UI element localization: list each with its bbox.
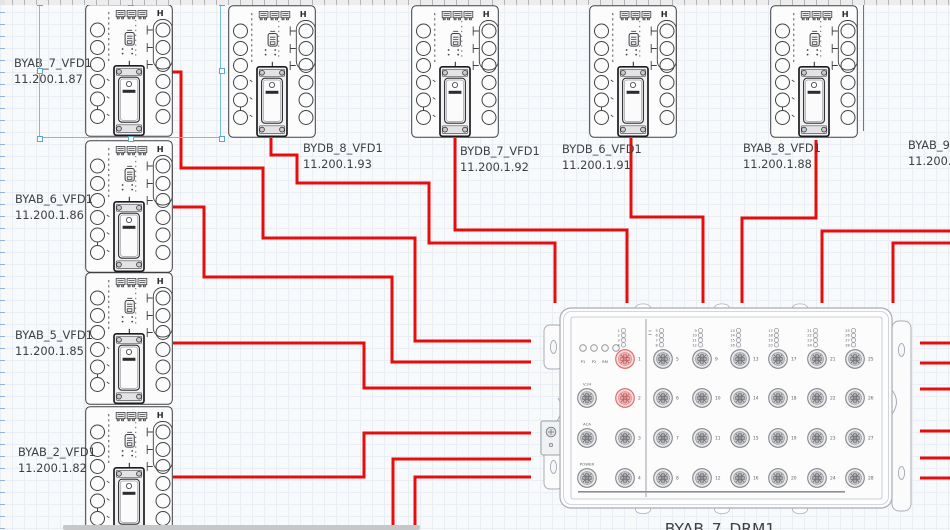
drm-port[interactable]	[808, 429, 827, 448]
drm-port[interactable]	[654, 389, 673, 408]
device-ip: 11.200.1.82	[18, 460, 96, 476]
port-indicator-led	[736, 338, 740, 342]
device-label: BYAB_2_VFD111.200.1.82	[18, 444, 96, 477]
port-number: 16	[753, 476, 759, 482]
device-ip: 11.200.1.86	[15, 207, 93, 223]
drm-port-highlighted[interactable]	[616, 350, 635, 369]
vfd-device-byab_6_vfd1[interactable]: H	[85, 140, 173, 273]
port-indicator-led	[813, 333, 817, 337]
port-led-number: 11	[692, 339, 697, 343]
port-led-number: 23	[807, 339, 812, 343]
vfd-device-byab_5_vfd1[interactable]: H	[85, 272, 173, 405]
status-led-p1	[580, 345, 587, 352]
port-number: 26	[868, 396, 874, 402]
port-number: 2	[638, 396, 641, 402]
port-led-number: 18	[768, 334, 773, 338]
device-ip: 11.200.1.92	[460, 159, 540, 175]
drm-port[interactable]	[769, 389, 788, 408]
port-led-number: 28	[845, 343, 850, 347]
port-indicator-led	[813, 343, 817, 347]
drm-port[interactable]	[693, 469, 712, 488]
port-led-number: 20	[768, 343, 773, 347]
device-name: BYAB_2_VFD1	[18, 444, 96, 460]
port-led-number: 25	[845, 329, 850, 333]
port-led-number: 5	[656, 329, 658, 333]
selection-handle[interactable]	[37, 136, 43, 142]
drm-port[interactable]	[693, 389, 712, 408]
port-indicator-led	[659, 328, 663, 332]
device-label-byab9: BYAB_9_ 11.200.1	[908, 137, 950, 170]
port-indicator-led	[774, 328, 778, 332]
drm-port[interactable]	[731, 429, 750, 448]
drm-port[interactable]	[846, 389, 865, 408]
status-led-rm	[602, 345, 609, 352]
drm-port[interactable]	[808, 389, 827, 408]
drm-port[interactable]	[808, 350, 827, 369]
port-number: 12	[715, 476, 721, 482]
status-led-p2	[591, 345, 598, 352]
h-port-icon: H	[157, 276, 164, 286]
vfd-device-graphic: H	[411, 5, 499, 138]
port-led-number: 15	[730, 339, 735, 343]
port-number: 22	[830, 396, 836, 402]
port-number: 15	[753, 436, 759, 442]
device-label: BYAB_6_VFD111.200.1.86	[15, 191, 93, 224]
ruler-corner	[0, 0, 5, 5]
selection-box[interactable]	[39, 2, 221, 138]
device-ip: 11.200.1.88	[743, 156, 821, 172]
horizontal-scrollbar-thumb[interactable]	[63, 525, 420, 530]
port-indicator-led	[813, 328, 817, 332]
port-number: 24	[830, 476, 836, 482]
drm-port[interactable]	[808, 469, 827, 488]
device-ip: 11.200.1.93	[303, 156, 383, 172]
h-port-icon: H	[483, 9, 490, 19]
horizontal-ruler	[0, 0, 950, 5]
device-label: BYDB_6_VFD111.200.1.91	[562, 141, 642, 174]
drm-device-label: BYAB_7_DRM1	[645, 520, 795, 530]
port-number: 9	[715, 357, 718, 363]
device-name: BYDB_7_VFD1	[460, 143, 540, 159]
h-port-icon: H	[157, 144, 164, 154]
device-ip: 11.200.1.91	[562, 157, 642, 173]
port-led-number: 13	[730, 329, 735, 333]
drm-port[interactable]	[693, 429, 712, 448]
vfd-device-byab_8_vfd1[interactable]: H	[770, 5, 858, 138]
port-number: 28	[868, 476, 874, 482]
vfd-device-graphic: H	[589, 5, 677, 138]
drm-port-highlighted[interactable]	[616, 389, 635, 408]
status-led-label: P2	[592, 359, 597, 364]
vfd-device-graphic: H	[85, 406, 173, 530]
selection-handle[interactable]	[219, 68, 225, 74]
port-indicator-led	[736, 328, 740, 332]
drm-port[interactable]	[846, 350, 865, 369]
port-indicator-led	[698, 343, 702, 347]
drm-port[interactable]	[769, 350, 788, 369]
service-port-power[interactable]	[578, 469, 597, 488]
port-led-number: 24	[807, 343, 812, 347]
port-indicator-led	[851, 338, 855, 342]
port-led-number: 12	[692, 343, 697, 347]
port-number: 10	[715, 396, 721, 402]
drm-port[interactable]	[846, 469, 865, 488]
h-port-icon: H	[842, 9, 849, 19]
vfd-device-graphic: H	[85, 272, 173, 405]
device-name: BYAB_5_VFD1	[15, 327, 93, 343]
port-led-number: 16	[730, 343, 735, 347]
port-number: 6	[676, 396, 679, 402]
port-number: 25	[868, 357, 874, 363]
drm-port[interactable]	[616, 469, 635, 488]
port-number: 17	[791, 357, 797, 363]
port-indicator-led	[621, 343, 625, 347]
port-number: 1	[638, 357, 641, 363]
device-name: BYDB_8_VFD1	[303, 140, 383, 156]
port-number: 7	[676, 436, 679, 442]
port-indicator-led	[813, 338, 817, 342]
port-number: 11	[715, 436, 721, 442]
port-number: 27	[868, 436, 874, 442]
h-port-icon: H	[300, 9, 307, 19]
port-indicator-led	[851, 328, 855, 332]
device-label: BYAB_8_VFD111.200.1.88	[743, 140, 821, 173]
drm-port[interactable]	[731, 389, 750, 408]
port-number: 5	[676, 357, 679, 363]
vfd-device-graphic: H	[85, 140, 173, 273]
port-number: 8	[676, 476, 679, 482]
vfd-device-bydb_7_vfd1[interactable]: H	[411, 5, 499, 138]
port-indicator-led	[698, 333, 702, 337]
drm-port[interactable]	[769, 429, 788, 448]
device-label: BYAB_5_VFD111.200.1.85	[15, 327, 93, 360]
vertical-ruler	[0, 0, 5, 530]
service-port-label: POWER	[580, 461, 595, 466]
vfd-device-byab_2_vfd1[interactable]: H	[85, 406, 173, 530]
status-led-label: P1	[581, 359, 586, 364]
port-number: 4	[638, 476, 641, 482]
port-led-number: 10	[692, 334, 697, 338]
port-led-number: 1	[618, 329, 620, 333]
vfd-device-graphic: H	[228, 5, 316, 138]
port-led-number: 26	[845, 334, 850, 338]
selection-handle[interactable]	[219, 136, 225, 142]
port-led-number: 27	[845, 339, 850, 343]
vfd-device-graphic: H	[770, 5, 858, 138]
port-led-number: 7	[656, 339, 658, 343]
drm-port[interactable]	[731, 469, 750, 488]
device-ip: 11.200.1.85	[15, 343, 93, 359]
diagram-canvas[interactable]: HBYAB_7_VFD111.200.1.87HBYAB_6_VFD111.20…	[0, 0, 950, 530]
port-led-number: 22	[807, 334, 812, 338]
port-led-number: 2	[618, 334, 620, 338]
device-label: BYDB_8_VFD111.200.1.93	[303, 140, 383, 173]
port-led-number: 19	[768, 339, 773, 343]
port-number: 13	[753, 357, 759, 363]
h-port-icon: H	[661, 9, 668, 19]
port-indicator-led	[736, 333, 740, 337]
status-led-label: RM	[602, 359, 608, 364]
drm-port[interactable]	[654, 350, 673, 369]
h-port-icon: H	[157, 410, 164, 420]
drm-port[interactable]	[846, 429, 865, 448]
port-indicator-led	[621, 333, 625, 337]
port-indicator-led	[851, 333, 855, 337]
port-number: 20	[791, 476, 797, 482]
port-indicator-led	[659, 338, 663, 342]
port-led-number: 21	[807, 329, 812, 333]
port-indicator-led	[736, 343, 740, 347]
device-name: BYDB_6_VFD1	[562, 141, 642, 157]
drm-port[interactable]	[616, 429, 635, 448]
vfd-device-bydb_8_vfd1[interactable]: H	[228, 5, 316, 138]
drm-port[interactable]	[654, 469, 673, 488]
drm-port[interactable]	[731, 350, 750, 369]
service-port-label: ACA	[583, 421, 591, 426]
device-name: BYAB_6_VFD1	[15, 191, 93, 207]
port-indicator-led	[698, 338, 702, 342]
drm-port[interactable]	[769, 469, 788, 488]
cable-clamp	[541, 421, 561, 455]
service-port-aca[interactable]	[578, 429, 597, 448]
port-number: 14	[753, 396, 759, 402]
port-number: 19	[791, 436, 797, 442]
port-indicator-led	[774, 338, 778, 342]
port-led-number: 3	[618, 339, 620, 343]
right-mounting-bracket	[892, 321, 911, 511]
port-led-number: 17	[768, 329, 773, 333]
service-port-v24[interactable]	[578, 389, 597, 408]
offscreen-device-edge	[863, 5, 864, 131]
drm-port[interactable]	[693, 350, 712, 369]
port-led-number: 14	[730, 334, 735, 338]
selection-handle[interactable]	[37, 68, 43, 74]
port-indicator-led	[774, 343, 778, 347]
port-number: 23	[830, 436, 836, 442]
port-indicator-led	[774, 333, 778, 337]
device-ip: 11.200.1	[908, 153, 950, 169]
selection-handle[interactable]	[128, 136, 134, 142]
port-indicator-led	[659, 333, 663, 337]
vfd-device-bydb_6_vfd1[interactable]: H	[589, 5, 677, 138]
device-name: BYAB_8_VFD1	[743, 140, 821, 156]
port-indicator-led	[659, 343, 663, 347]
port-number: 21	[830, 357, 836, 363]
port-indicator-led	[851, 343, 855, 347]
port-number: 18	[791, 396, 797, 402]
device-name: BYAB_9_	[908, 137, 950, 153]
service-port-label: V.24	[583, 381, 592, 386]
port-indicator-led	[621, 328, 625, 332]
port-indicator-led	[621, 338, 625, 342]
drm-device-byab_7_drm1[interactable]: P1P2RMFAULT11223344556677889910101111121…	[537, 303, 912, 530]
drm-port[interactable]	[654, 429, 673, 448]
port-number: 3	[638, 436, 641, 442]
device-label: BYDB_7_VFD111.200.1.92	[460, 143, 540, 176]
port-indicator-led	[698, 328, 702, 332]
